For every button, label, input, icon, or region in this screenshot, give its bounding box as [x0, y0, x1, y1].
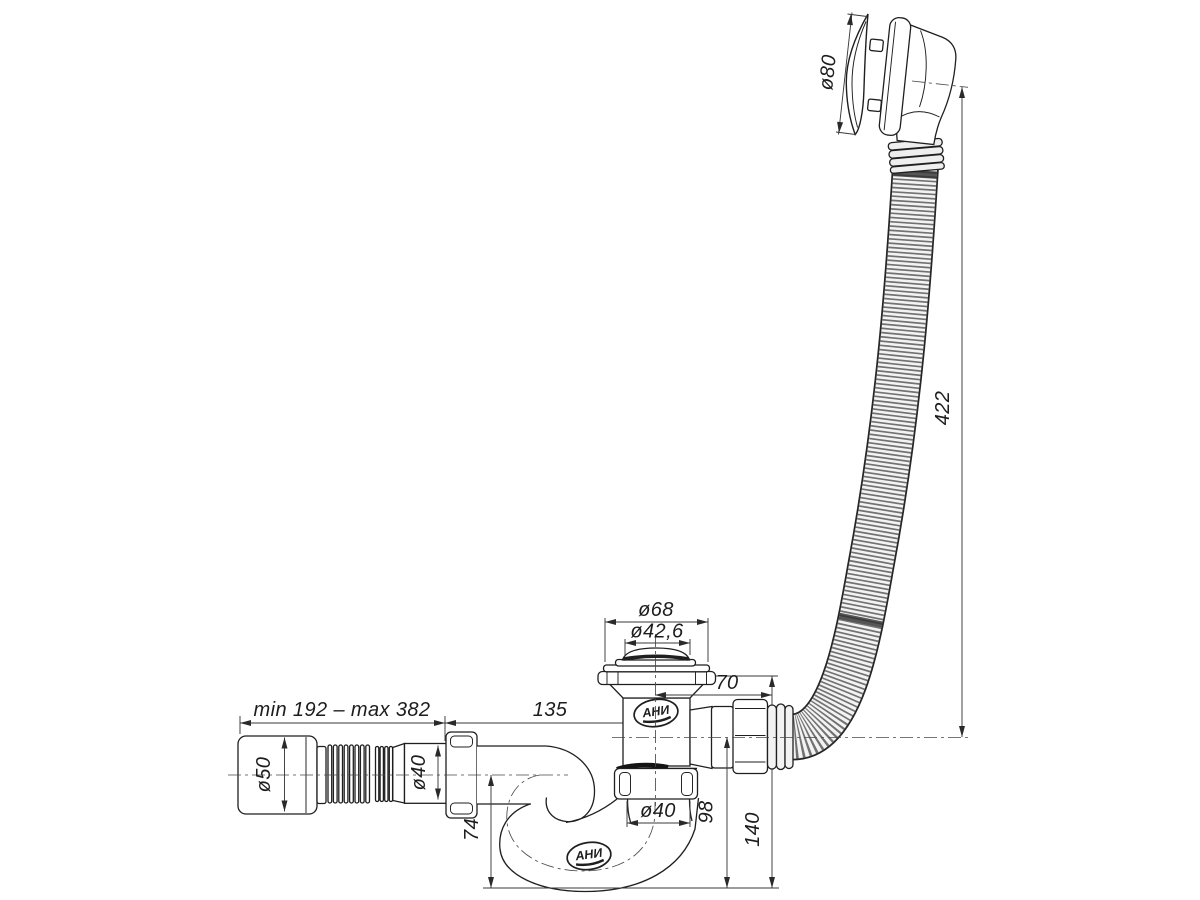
overflow-cap-assembly — [846, 14, 956, 174]
hose-connector-rings-bottom — [768, 704, 794, 770]
dim-label-70: 70 — [715, 672, 738, 694]
trap-inner-curl — [546, 746, 595, 822]
dim-label-phi80: ø80 — [815, 53, 841, 91]
dim-label-140: 140 — [742, 812, 764, 847]
dim-label-phi40-trap: ø40 — [640, 800, 676, 822]
dim-label-flex-range: min 192 – max 382 — [254, 699, 431, 721]
hose-connector-rings-top — [888, 138, 944, 173]
tub-drain-assembly: АНИ — [598, 648, 793, 799]
corrugation-group-2 — [376, 747, 393, 802]
dim-label-phi68: ø68 — [638, 599, 674, 621]
trap-inlet-nut-bottom — [615, 769, 698, 800]
cap-screw-boss-lower — [867, 99, 881, 112]
bathtub-drain-siphon-drawing: АНИ АНИ — [0, 0, 1200, 900]
dim-label-phi50: ø50 — [253, 757, 275, 793]
dim-label-phi40-pipe: ø40 — [408, 755, 430, 791]
technical-drawing-canvas: АНИ АНИ — [0, 0, 1200, 900]
side-outlet-nut — [733, 700, 768, 774]
dim-label-422: 422 — [932, 391, 954, 426]
dim-label-phi42-6: ø42,6 — [630, 621, 684, 643]
cap-screw-boss-upper — [869, 39, 883, 52]
dim-label-74: 74 — [461, 818, 483, 841]
brand-logo-trap: АНИ — [565, 840, 612, 873]
corrugation-group-1 — [328, 745, 370, 803]
drain-screw-ring — [598, 672, 716, 685]
dim-label-135: 135 — [533, 699, 568, 721]
drain-neck — [610, 684, 704, 698]
overflow-hose — [792, 158, 916, 737]
dimensions: min 192 – max 382 135 70 ø68 ø42,6 74 98… — [240, 13, 965, 889]
dim-label-98: 98 — [696, 800, 718, 823]
